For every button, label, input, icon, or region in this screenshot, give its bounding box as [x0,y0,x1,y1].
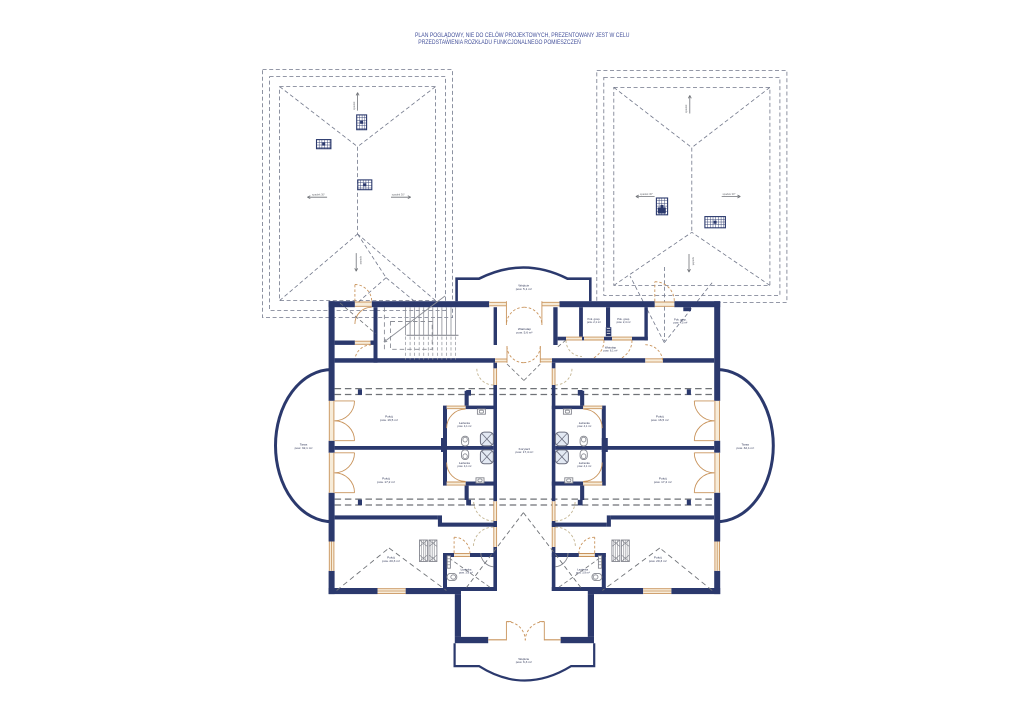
svg-text:pow. 6,1 m²: pow. 6,1 m² [604,348,618,352]
svg-text:pow. 32,1 m²: pow. 32,1 m² [736,446,754,450]
svg-text:spadek 30°: spadek 30° [392,193,405,197]
svg-text:pow. 20,3 m²: pow. 20,3 m² [382,559,400,563]
svg-text:spadek: spadek [352,101,356,110]
svg-text:pow. 3,9 m²: pow. 3,9 m² [576,570,590,574]
svg-text:spadek 30°: spadek 30° [640,192,653,196]
svg-text:spadek: spadek [692,257,696,266]
svg-text:pow. 16,5 m²: pow. 16,5 m² [380,418,398,422]
svg-text:pow. 4,1 m²: pow. 4,1 m² [577,424,591,428]
svg-text:pow. 6,3 m²: pow. 6,3 m² [516,660,532,664]
svg-text:spadek 30°: spadek 30° [723,192,736,196]
svg-text:pow. 16,5 m²: pow. 16,5 m² [651,418,669,422]
svg-text:PRZEDSTAWIENIA ROZKŁADU FUNKCJ: PRZEDSTAWIENIA ROZKŁADU FUNKCJONALNEGO P… [418,39,581,46]
svg-text:pow. 17,2 m²: pow. 17,2 m² [654,480,672,484]
svg-text:pow. 4,1 m²: pow. 4,1 m² [577,464,591,468]
svg-text:pow. 2,1 m²: pow. 2,1 m² [587,320,601,324]
svg-text:pow. 5,6 m²: pow. 5,6 m² [516,330,532,334]
svg-text:pow. 32,1 m²: pow. 32,1 m² [295,446,313,450]
svg-text:spadek: spadek [684,104,688,113]
svg-text:pow. 4,1 m²: pow. 4,1 m² [458,424,472,428]
svg-text:pow. 4,1 m²: pow. 4,1 m² [458,464,472,468]
svg-text:pow. 4,5 m²: pow. 4,5 m² [673,321,687,325]
svg-text:pow. 17,2 m²: pow. 17,2 m² [377,480,395,484]
svg-text:spadek 30°: spadek 30° [312,193,325,197]
svg-text:spadek: spadek [359,256,363,265]
svg-text:pow. 2,4 m²: pow. 2,4 m² [617,320,631,324]
svg-text:pow. 5,1 m²: pow. 5,1 m² [516,287,532,291]
svg-text:pow. 17,4 m²: pow. 17,4 m² [516,450,534,454]
svg-text:pow. 3,9 m²: pow. 3,9 m² [459,570,473,574]
svg-text:pow. 20,3 m²: pow. 20,3 m² [649,559,667,563]
